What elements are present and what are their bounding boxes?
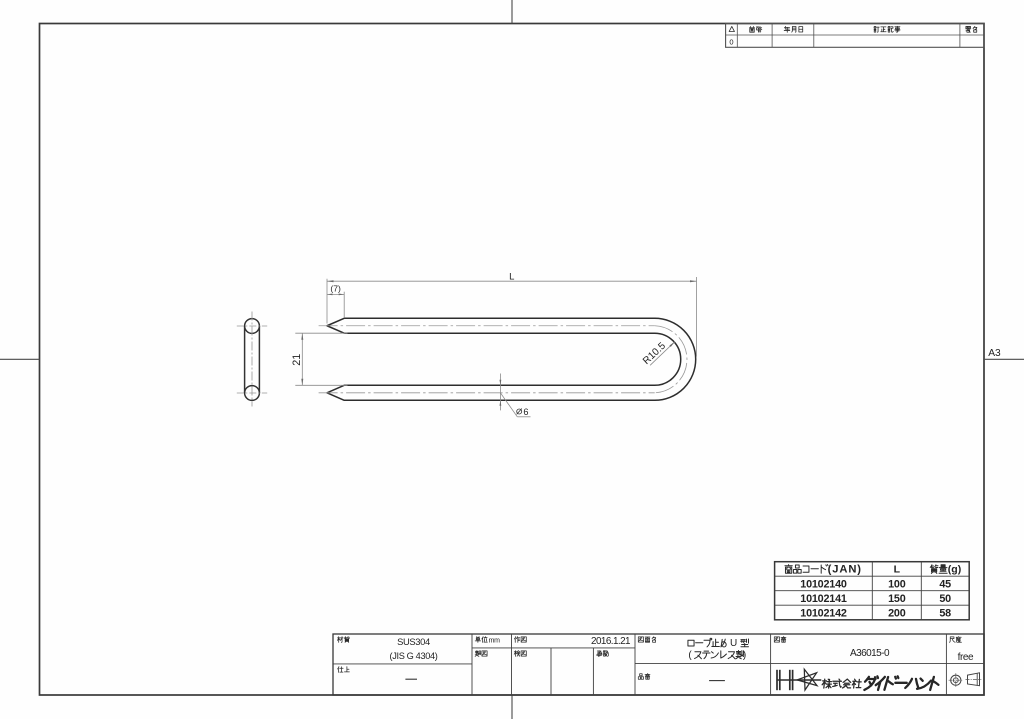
svg-text:50: 50 [939, 593, 951, 605]
svg-text:mm: mm [489, 637, 501, 644]
svg-text:SUS304: SUS304 [397, 636, 430, 647]
svg-text:0: 0 [729, 37, 733, 46]
svg-text:): ) [743, 650, 746, 661]
svg-text:U: U [730, 638, 737, 649]
svg-text:L: L [894, 564, 901, 576]
svg-text:6: 6 [523, 407, 528, 417]
svg-text:L: L [509, 271, 514, 282]
svg-text:10102141: 10102141 [800, 593, 847, 605]
svg-text:58: 58 [939, 607, 951, 619]
svg-text:A3: A3 [988, 348, 1001, 359]
svg-text:45: 45 [939, 578, 951, 590]
svg-text:(JIS G 4304): (JIS G 4304) [390, 651, 438, 661]
svg-text:150: 150 [888, 593, 906, 605]
svg-text:200: 200 [888, 607, 906, 619]
svg-text:2016.1.21: 2016.1.21 [591, 636, 631, 647]
svg-text:(g): (g) [948, 564, 961, 576]
svg-text:10102142: 10102142 [800, 607, 847, 619]
svg-text:10102140: 10102140 [800, 578, 847, 590]
svg-text:free: free [958, 652, 974, 663]
svg-text:A36015-0: A36015-0 [850, 648, 890, 659]
svg-text:(7): (7) [330, 283, 341, 293]
svg-text:100: 100 [888, 578, 906, 590]
svg-text:21: 21 [291, 354, 303, 366]
svg-text:(JAN): (JAN) [828, 564, 862, 576]
